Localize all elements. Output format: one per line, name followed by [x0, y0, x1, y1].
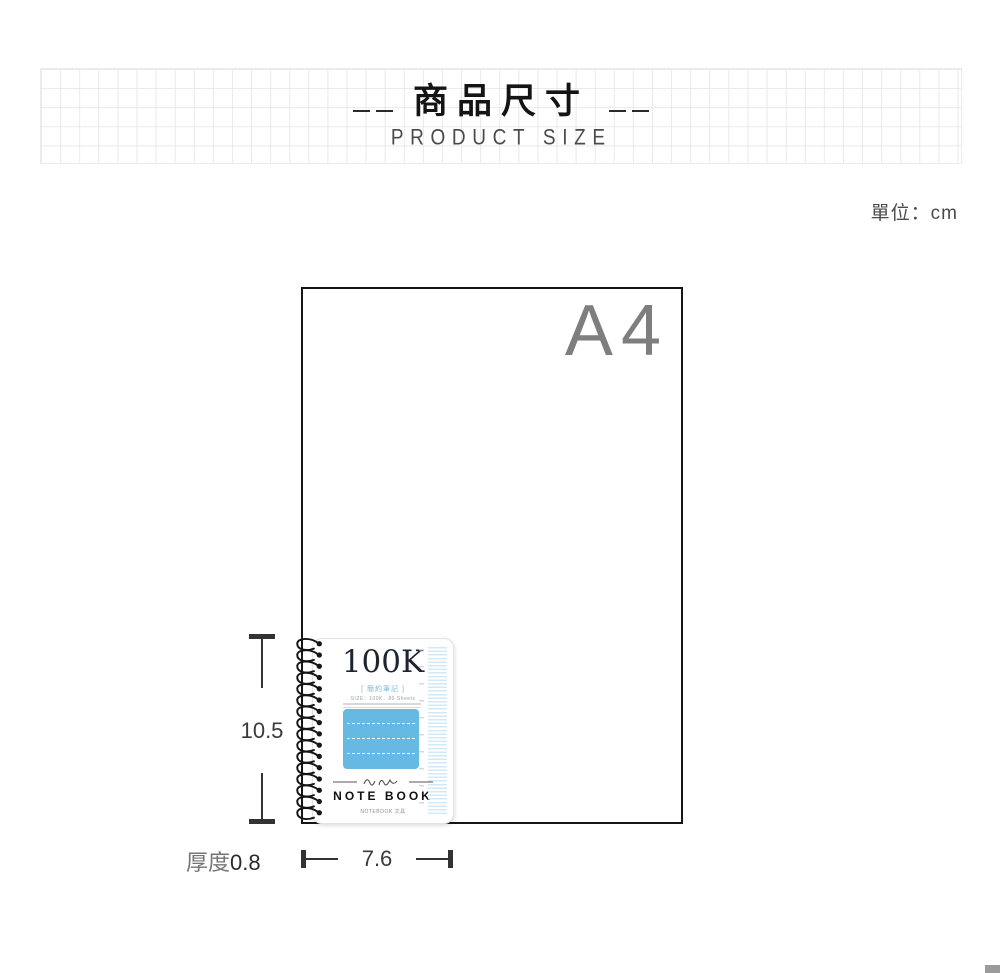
height-value: 10.5 [241, 688, 284, 773]
panel-rule-line [347, 723, 415, 724]
cover-blue-panel [343, 709, 419, 769]
ruler-stripe-strip [428, 647, 447, 815]
corner-partial-block [985, 965, 1000, 973]
title-left-dashes [353, 110, 393, 113]
unit-label: 單位：cm [871, 198, 958, 225]
ruler-tick-marks [419, 649, 424, 813]
title-right-dashes [609, 110, 649, 113]
height-dimension: 10.5 [249, 634, 275, 824]
spiral-binding [290, 630, 330, 826]
notebook-cover: 100K [ 簡約筆記 ] SIZE：100K．80 Sheets NOTE B… [312, 638, 454, 824]
width-value: 7.6 [338, 848, 416, 870]
product-size-page: 商品尺寸 PRODUCT SIZE 單位：cm A4 100K [ 簡約筆記 [0, 0, 1000, 973]
dash [632, 110, 649, 113]
dimension-line [306, 858, 338, 860]
dash [376, 110, 393, 113]
panel-rule-line [347, 753, 415, 754]
title-row: 商品尺寸 [353, 84, 649, 119]
width-dimension: 7.6 [301, 849, 453, 869]
dimension-line [261, 773, 263, 819]
fine-print-line [343, 707, 421, 709]
header-banner: 商品尺寸 PRODUCT SIZE [40, 68, 962, 164]
dimension-cap-bottom [249, 819, 275, 824]
fine-print-line [343, 703, 421, 705]
thickness-value: 0.8 [230, 850, 261, 875]
dash [609, 110, 626, 113]
dimension-cap-right [448, 850, 453, 868]
thickness-label: 厚度 [186, 850, 230, 875]
thickness-annotation: 厚度0.8 [186, 850, 261, 876]
a4-size-label: A4 [565, 295, 669, 367]
panel-rule-line [347, 738, 415, 739]
dimension-line [261, 639, 263, 688]
dash [353, 110, 370, 113]
dimension-line [416, 858, 448, 860]
page-subtitle: PRODUCT SIZE [391, 127, 612, 149]
page-title: 商品尺寸 [413, 84, 589, 119]
